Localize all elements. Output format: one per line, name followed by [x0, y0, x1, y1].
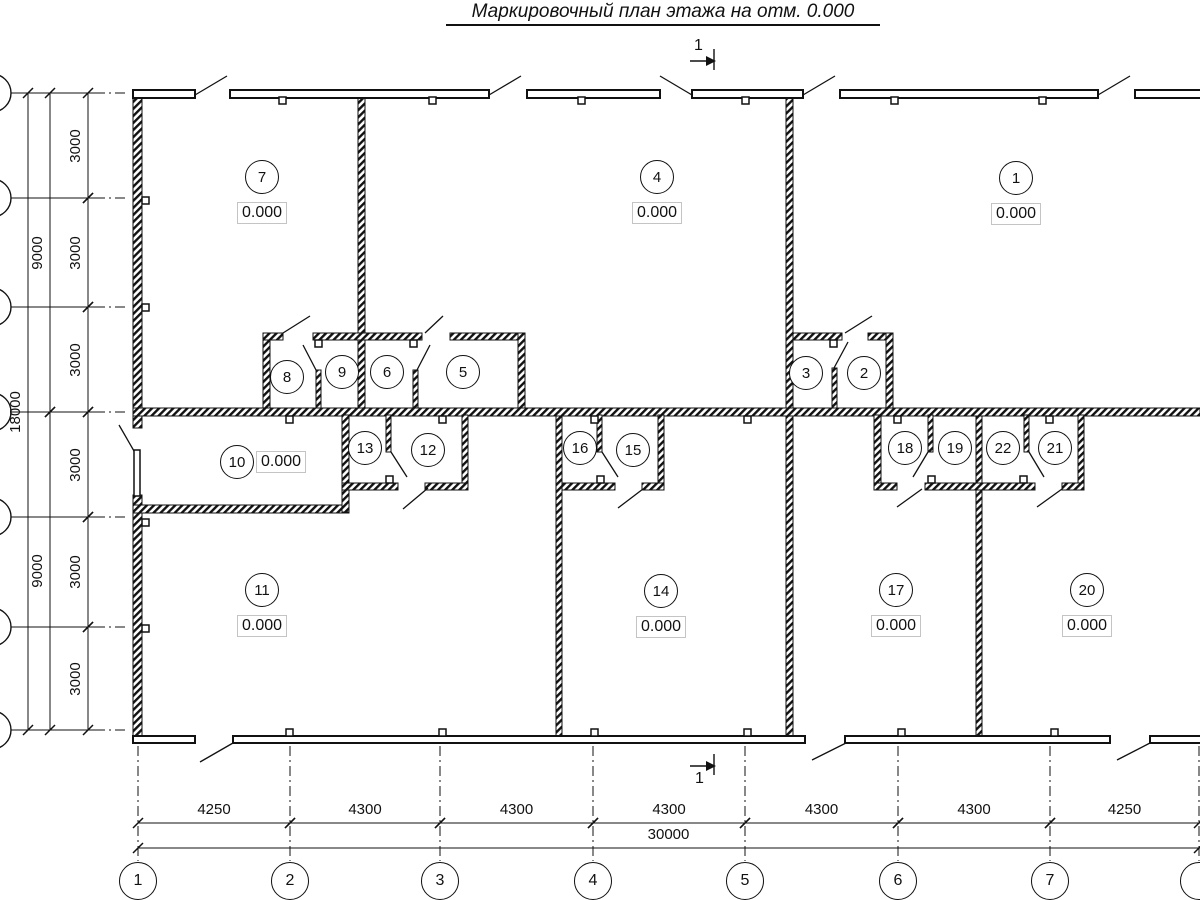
room-11-marker: 11: [245, 573, 279, 607]
dim-vertical-label: 3000: [68, 425, 84, 505]
grid-axis-bubble-5: 5: [726, 862, 764, 900]
dim-vertical-label: 18000: [8, 372, 24, 452]
room-20-elevation: 0.000: [1062, 615, 1112, 637]
entrance-door-leaf: [134, 450, 140, 496]
dim-horizontal-label: 4300: [477, 802, 557, 818]
dim-vertical-label: 3000: [68, 213, 84, 293]
room-17-elevation: 0.000: [871, 615, 921, 637]
grid-axis-bubble-3: 3: [421, 862, 459, 900]
grid-axis-bubble-4: 4: [574, 862, 612, 900]
dim-vertical-label: 3000: [68, 106, 84, 186]
section-mark-label: 1: [694, 37, 703, 55]
room-1-elevation: 0.000: [991, 203, 1041, 225]
grid-axis-bubble-7: 7: [1031, 862, 1069, 900]
dim-vertical-label: 9000: [30, 213, 46, 293]
room-6-marker: 6: [370, 355, 404, 389]
dim-vertical-label: 9000: [30, 531, 46, 611]
room-10-elevation: 0.000: [256, 451, 306, 473]
room-22-marker: 22: [986, 431, 1020, 465]
room-5-marker: 5: [446, 355, 480, 389]
room-18-marker: 18: [888, 431, 922, 465]
dim-vertical-label: 3000: [68, 320, 84, 400]
room-4-marker: 4: [640, 160, 674, 194]
room-8-marker: 8: [270, 360, 304, 394]
room-11-elevation: 0.000: [237, 615, 287, 637]
dim-horizontal-label: 4300: [325, 802, 405, 818]
room-3-marker: 3: [789, 356, 823, 390]
room-14-elevation: 0.000: [636, 616, 686, 638]
room-9-marker: 9: [325, 355, 359, 389]
floor-plan-page: Маркировочный план этажа на отм. 0.000 7…: [0, 0, 1200, 900]
dim-horizontal-label: 4300: [934, 802, 1014, 818]
dim-horizontal-label: 4300: [629, 802, 709, 818]
dim-vertical-label: 3000: [68, 639, 84, 719]
room-7-marker: 7: [245, 160, 279, 194]
room-10-marker: 10: [220, 445, 254, 479]
floor-plan-drawing: [0, 0, 1200, 900]
room-7-elevation: 0.000: [237, 202, 287, 224]
room-21-marker: 21: [1038, 431, 1072, 465]
room-17-marker: 17: [879, 573, 913, 607]
room-2-marker: 2: [847, 356, 881, 390]
dim-horizontal-label: 4250: [1085, 802, 1165, 818]
grid-axis-bubble-1: 1: [119, 862, 157, 900]
section-mark-label: 1: [695, 770, 704, 788]
grid-axis-bubble-2: 2: [271, 862, 309, 900]
room-19-marker: 19: [938, 431, 972, 465]
dim-horizontal-label: 4250: [174, 802, 254, 818]
room-20-marker: 20: [1070, 573, 1104, 607]
room-14-marker: 14: [644, 574, 678, 608]
room-13-marker: 13: [348, 431, 382, 465]
room-15-marker: 15: [616, 433, 650, 467]
dim-horizontal-label: 4300: [782, 802, 862, 818]
room-12-marker: 12: [411, 433, 445, 467]
dim-total-label: 30000: [629, 827, 709, 843]
drawing-title: Маркировочный план этажа на отм. 0.000: [446, 1, 880, 26]
room-1-marker: 1: [999, 161, 1033, 195]
dim-vertical-label: 3000: [68, 532, 84, 612]
room-4-elevation: 0.000: [632, 202, 682, 224]
grid-axis-bubble-6: 6: [879, 862, 917, 900]
room-16-marker: 16: [563, 431, 597, 465]
